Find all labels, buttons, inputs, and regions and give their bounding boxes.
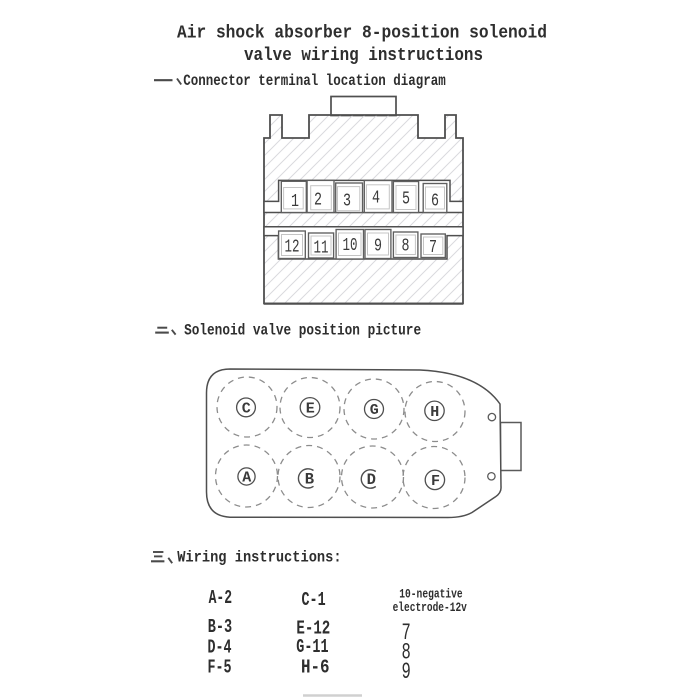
- svg-text:C: C: [242, 401, 251, 418]
- svg-text:9: 9: [402, 659, 411, 685]
- svg-text:12: 12: [285, 237, 300, 258]
- svg-text:5: 5: [402, 189, 410, 210]
- svg-text:G: G: [370, 402, 379, 419]
- svg-text:8: 8: [402, 236, 410, 257]
- svg-text:4: 4: [372, 188, 380, 209]
- svg-text:Solenoid valve position pictur: Solenoid valve position picture: [184, 321, 421, 339]
- svg-text:F-5: F-5: [208, 656, 232, 678]
- svg-text:10: 10: [343, 235, 358, 256]
- svg-text:valve wiring instructions: valve wiring instructions: [244, 46, 483, 66]
- svg-text:6: 6: [431, 191, 439, 212]
- svg-text:D-4: D-4: [208, 636, 232, 658]
- svg-text:A: A: [242, 470, 251, 487]
- svg-text:1: 1: [291, 191, 299, 212]
- svg-text:E: E: [306, 401, 315, 418]
- svg-text:Wiring instructions:: Wiring instructions:: [177, 549, 341, 567]
- svg-text:10-negative: 10-negative: [399, 588, 462, 602]
- svg-text:B-3: B-3: [208, 616, 232, 638]
- svg-text:G-11: G-11: [296, 636, 328, 658]
- svg-text:electrode-12v: electrode-12v: [393, 601, 468, 615]
- svg-text:H: H: [430, 404, 439, 421]
- svg-text:Connector terminal location di: Connector terminal location diagram: [183, 72, 446, 90]
- svg-text:A-2: A-2: [209, 587, 233, 609]
- svg-text:3: 3: [343, 191, 351, 212]
- svg-text:B: B: [305, 471, 314, 489]
- svg-text:11: 11: [314, 238, 329, 259]
- svg-text:H-6: H-6: [301, 656, 330, 678]
- svg-text:C-1: C-1: [302, 589, 326, 611]
- svg-text:Air shock absorber 8-position: Air shock absorber 8-position solenoid: [177, 24, 547, 44]
- svg-text:7: 7: [429, 237, 437, 258]
- svg-text:9: 9: [374, 236, 382, 257]
- svg-text:D: D: [367, 471, 376, 489]
- svg-text:F: F: [431, 473, 440, 490]
- svg-text:2: 2: [314, 190, 322, 211]
